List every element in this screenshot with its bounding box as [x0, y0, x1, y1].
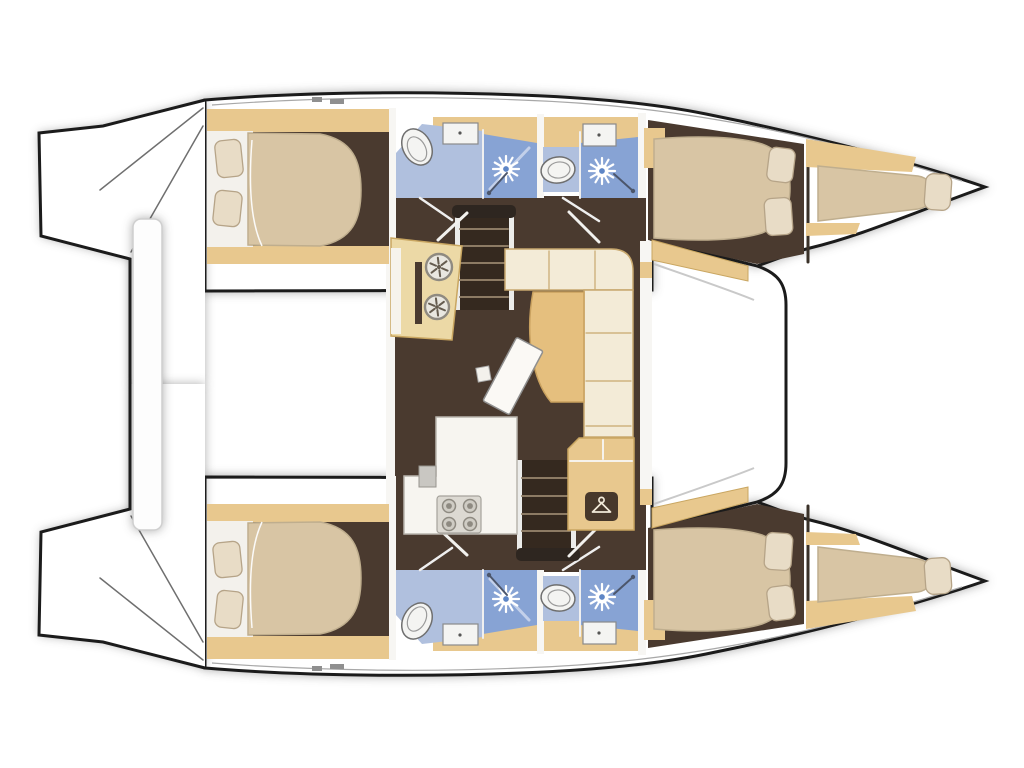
forward-wall-trim: [640, 262, 652, 278]
galley-island-slot: [415, 262, 422, 324]
stove-burner: [443, 500, 456, 513]
aft-cabin-bed: [248, 522, 361, 635]
galley-sink: [426, 254, 452, 280]
galley-island-edge: [391, 248, 401, 334]
shower-wand-head: [487, 191, 491, 195]
aft-cabin-head-trim: [207, 109, 391, 132]
stairs-to-starboard-hull: [520, 460, 572, 552]
stove-burner: [464, 500, 477, 513]
stove-burner: [443, 518, 456, 531]
shower-wand-head: [631, 189, 635, 193]
cabin-bulkhead: [389, 476, 396, 660]
floorplan-page: [0, 0, 1024, 768]
deck-cleat: [330, 664, 344, 669]
salon-forward-wall: [640, 241, 652, 505]
head-partition-wall: [537, 114, 544, 198]
pillow: [764, 197, 794, 236]
table-leg: [476, 366, 491, 382]
pillow: [764, 532, 794, 571]
shower-wand-head: [487, 573, 491, 577]
sink-drain: [458, 131, 461, 134]
aft-cabin-bed: [248, 133, 361, 246]
forward-wall-trim: [640, 489, 652, 505]
pillow: [212, 541, 243, 579]
wardrobe-hanger-icon: [585, 492, 618, 521]
stairs-to-port-hull: [458, 212, 510, 310]
pillow: [924, 557, 952, 595]
deck-cleat: [312, 666, 322, 671]
forepeak-trim: [806, 223, 860, 236]
sofa-right-arm: [584, 290, 633, 437]
floorplan: [0, 0, 1024, 768]
sofa-top-arm: [505, 249, 633, 290]
aft-cabin-foot-trim: [207, 504, 391, 522]
aft-platform-bar: [133, 219, 162, 530]
aft-cabin-head-trim: [207, 636, 391, 659]
pillow: [766, 585, 796, 622]
pillow: [924, 173, 952, 211]
aft-cabin-foot-trim: [207, 246, 391, 264]
sink-drain: [597, 631, 600, 634]
deck-cleat: [312, 97, 322, 102]
forepeak-trim: [806, 532, 860, 545]
deck-cleat: [330, 99, 344, 104]
pillow: [212, 190, 243, 228]
sink-drain: [458, 633, 461, 636]
galley-sink: [425, 295, 449, 319]
counter-sink: [419, 466, 436, 487]
pillow: [214, 139, 244, 179]
pillow: [766, 147, 796, 184]
galley-island: [391, 238, 462, 340]
shower-wand-head: [631, 575, 635, 579]
stove-burner: [464, 518, 477, 531]
head-partition-wall: [537, 570, 544, 654]
pillow: [214, 590, 244, 630]
bow-crossbeam: [757, 266, 786, 502]
sink-drain: [597, 133, 600, 136]
